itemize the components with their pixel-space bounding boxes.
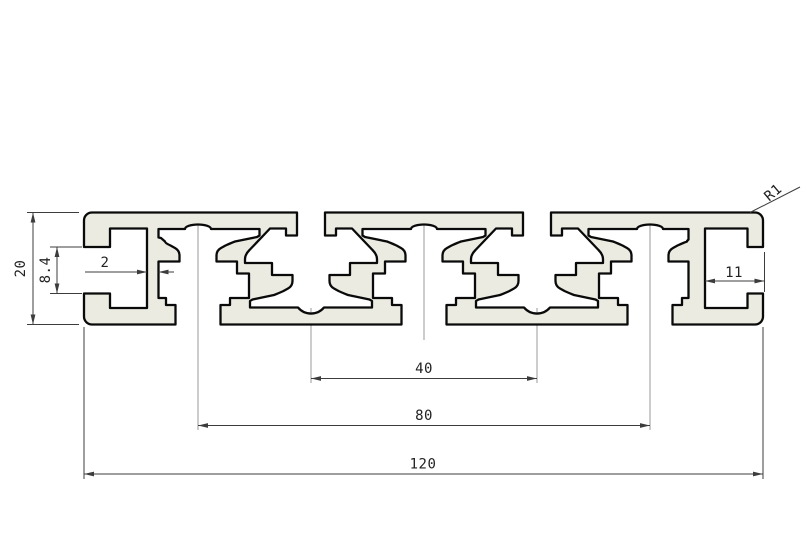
dim-corner-radius-label: R1: [761, 181, 785, 205]
arrow-icon: [198, 423, 208, 428]
arrow-icon: [527, 376, 537, 381]
arrow-icon: [84, 472, 94, 477]
arrow-icon: [753, 472, 763, 477]
dim-wall-label: 2: [101, 255, 110, 271]
arrow-icon: [55, 284, 60, 294]
profile-drawing: 20 8.4 2 11 40 80 120 R1: [0, 0, 804, 557]
dim-width-label: 120: [410, 457, 437, 473]
arrow-icon: [311, 376, 321, 381]
arrow-icon: [705, 279, 715, 284]
arrow-icon: [159, 270, 169, 275]
arrow-icon: [755, 279, 765, 284]
drawing-canvas: 20 8.4 2 11 40 80 120 R1: [0, 0, 804, 557]
arrow-icon: [640, 423, 650, 428]
dimension-lines: [27, 187, 800, 479]
dim-slot-opening-label: 8.4: [38, 257, 54, 284]
arrow-icon: [31, 213, 36, 223]
dim-end-slot-depth-label: 11: [725, 265, 743, 281]
dim-pitch-40-label: 40: [415, 361, 433, 377]
arrow-icon: [137, 270, 147, 275]
dim-pitch-80-label: 80: [415, 408, 433, 424]
dim-height-label: 20: [13, 260, 29, 278]
arrow-icon: [31, 315, 36, 325]
arrow-icon: [55, 247, 60, 257]
